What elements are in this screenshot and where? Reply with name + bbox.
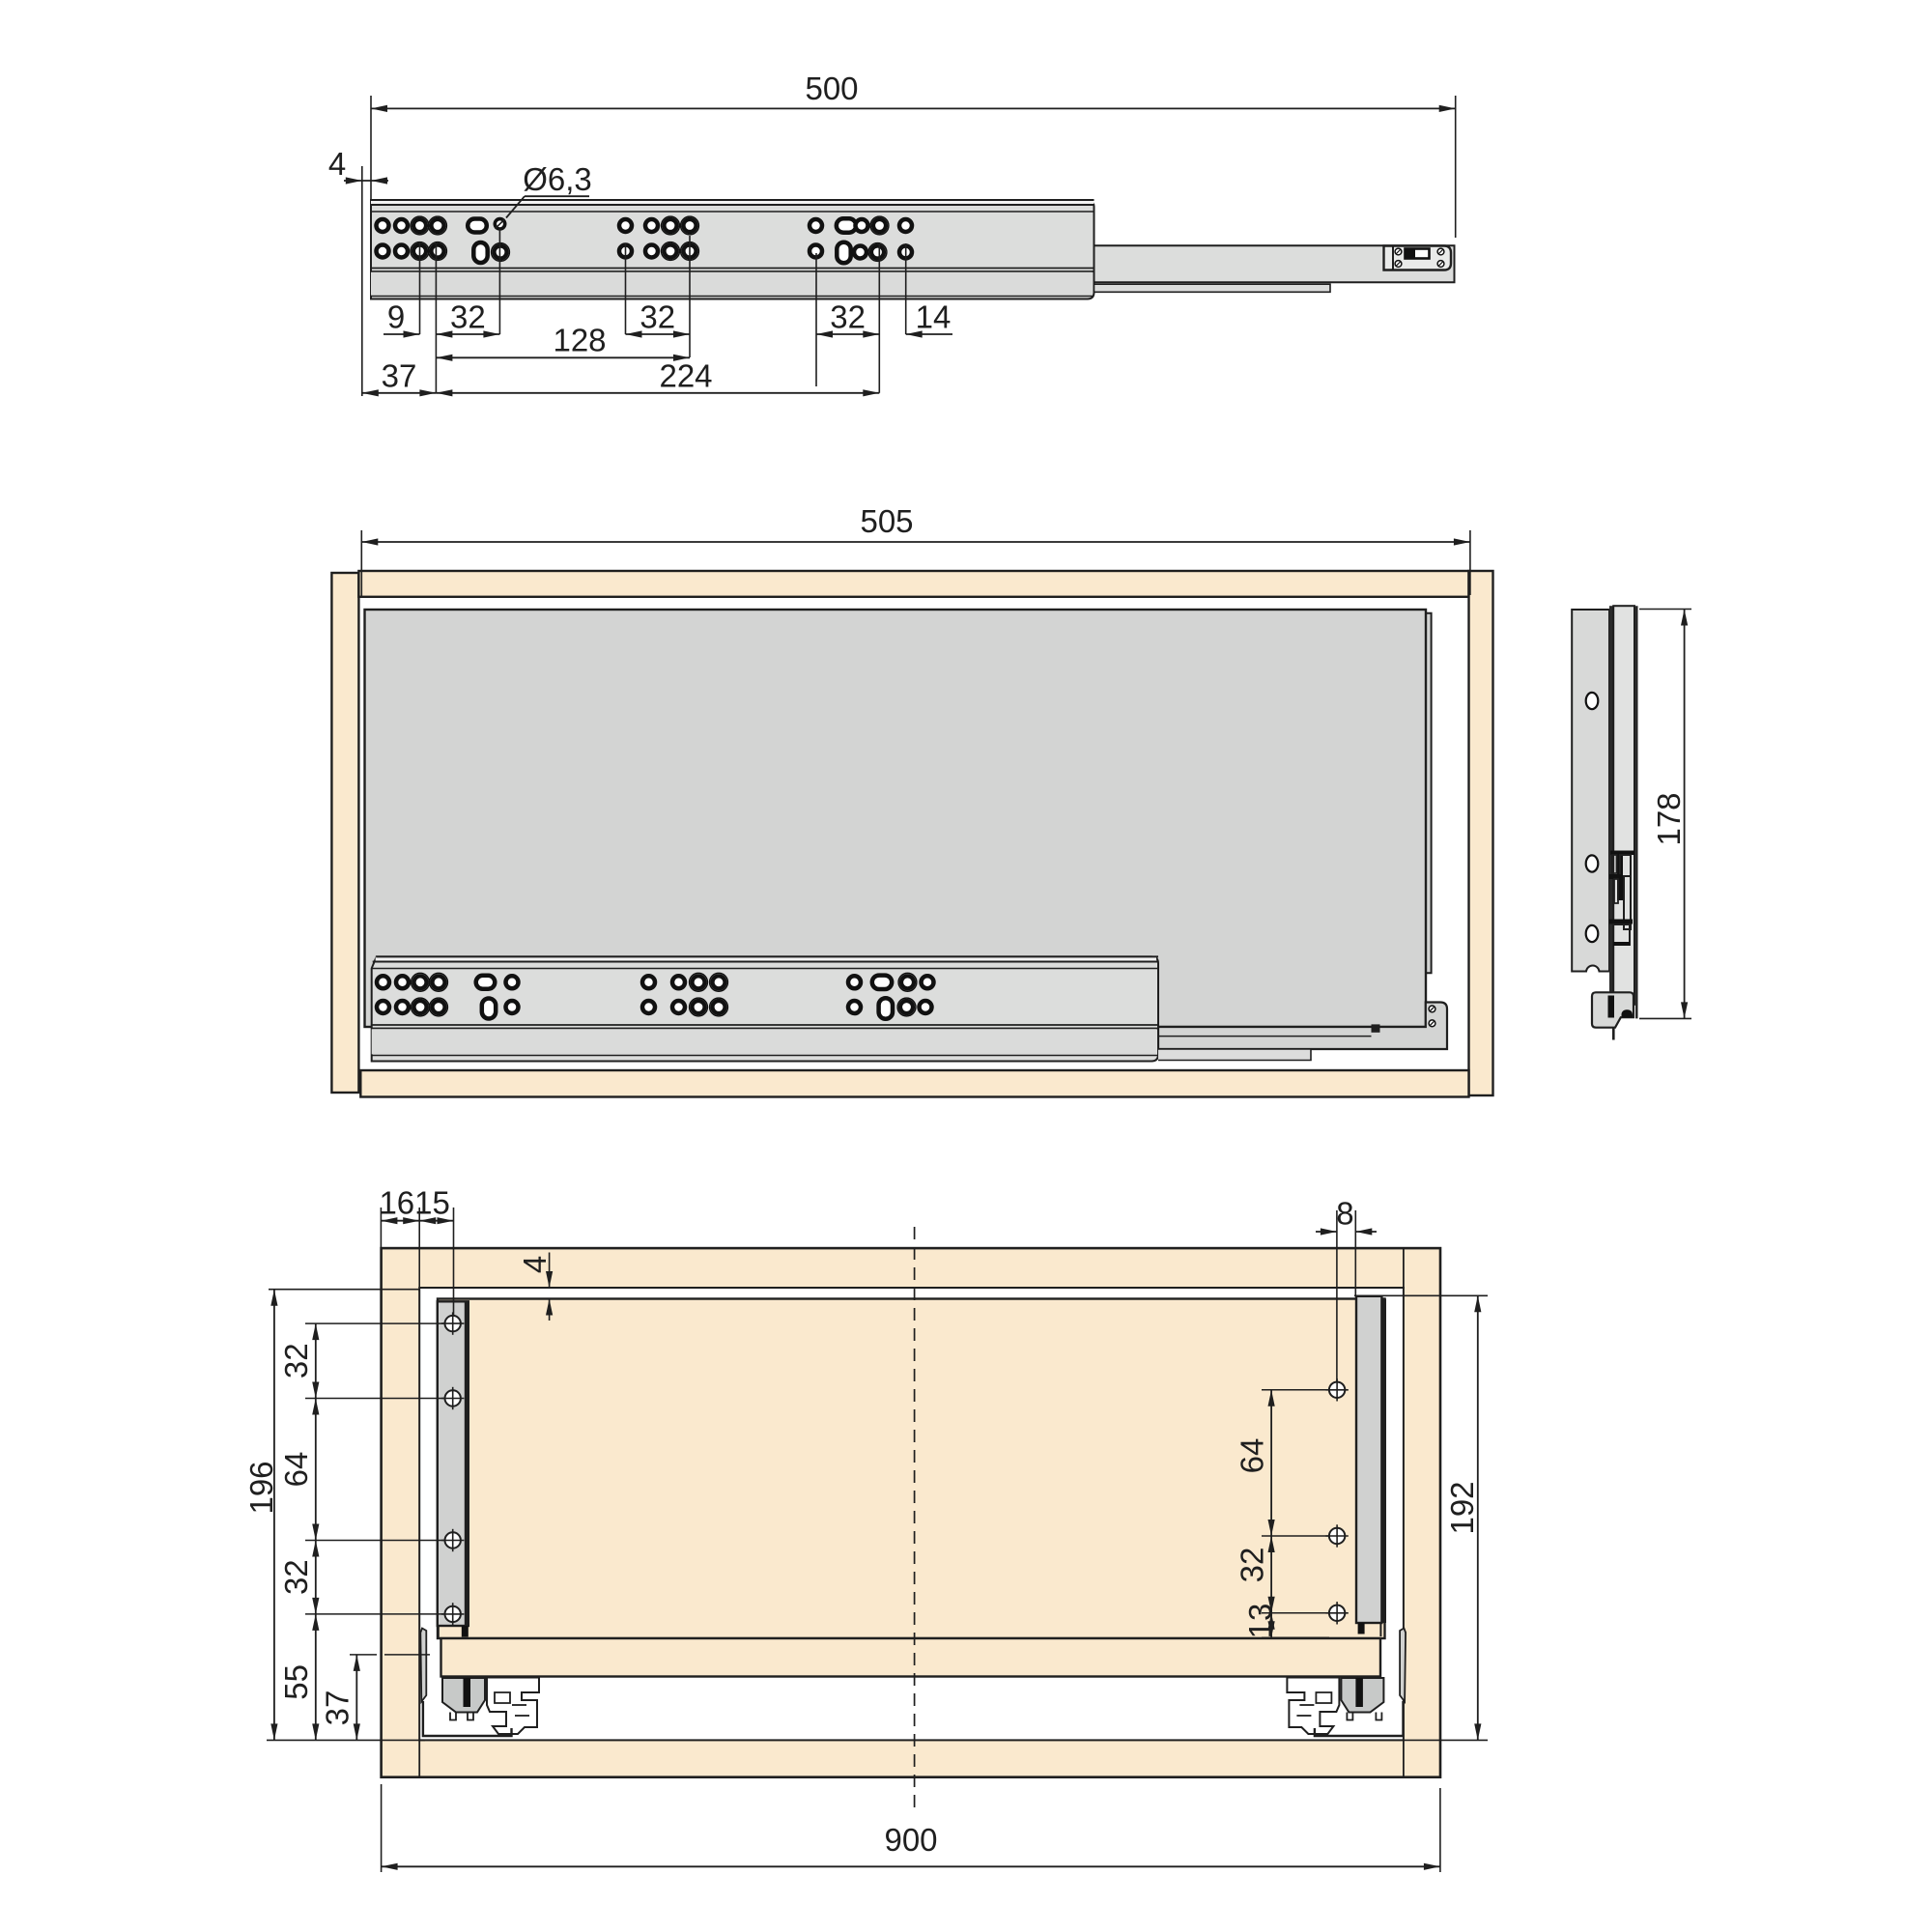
svg-text:128: 128	[553, 323, 606, 358]
svg-text:9: 9	[387, 299, 405, 335]
svg-text:500: 500	[805, 71, 858, 106]
svg-text:15: 15	[414, 1185, 450, 1221]
svg-text:8: 8	[1336, 1196, 1353, 1232]
svg-text:505: 505	[860, 503, 913, 539]
svg-text:900: 900	[884, 1822, 937, 1858]
svg-text:32: 32	[278, 1343, 314, 1378]
svg-text:32: 32	[278, 1559, 314, 1595]
svg-text:64: 64	[278, 1452, 314, 1488]
svg-text:178: 178	[1651, 792, 1687, 845]
svg-text:64: 64	[1235, 1438, 1270, 1474]
svg-text:14: 14	[916, 299, 952, 335]
svg-text:4: 4	[328, 146, 346, 182]
svg-text:55: 55	[278, 1664, 314, 1700]
svg-text:Ø6,3: Ø6,3	[523, 161, 592, 197]
svg-text:4: 4	[517, 1256, 553, 1273]
svg-text:16: 16	[379, 1185, 414, 1221]
svg-text:32: 32	[830, 299, 866, 335]
svg-text:224: 224	[659, 357, 712, 393]
svg-text:32: 32	[1235, 1548, 1270, 1583]
svg-text:192: 192	[1444, 1481, 1480, 1534]
svg-text:196: 196	[243, 1461, 279, 1514]
svg-text:37: 37	[382, 357, 417, 393]
svg-text:37: 37	[320, 1690, 355, 1726]
svg-text:32: 32	[450, 299, 486, 335]
svg-text:32: 32	[639, 299, 675, 335]
svg-text:13: 13	[1242, 1604, 1278, 1639]
